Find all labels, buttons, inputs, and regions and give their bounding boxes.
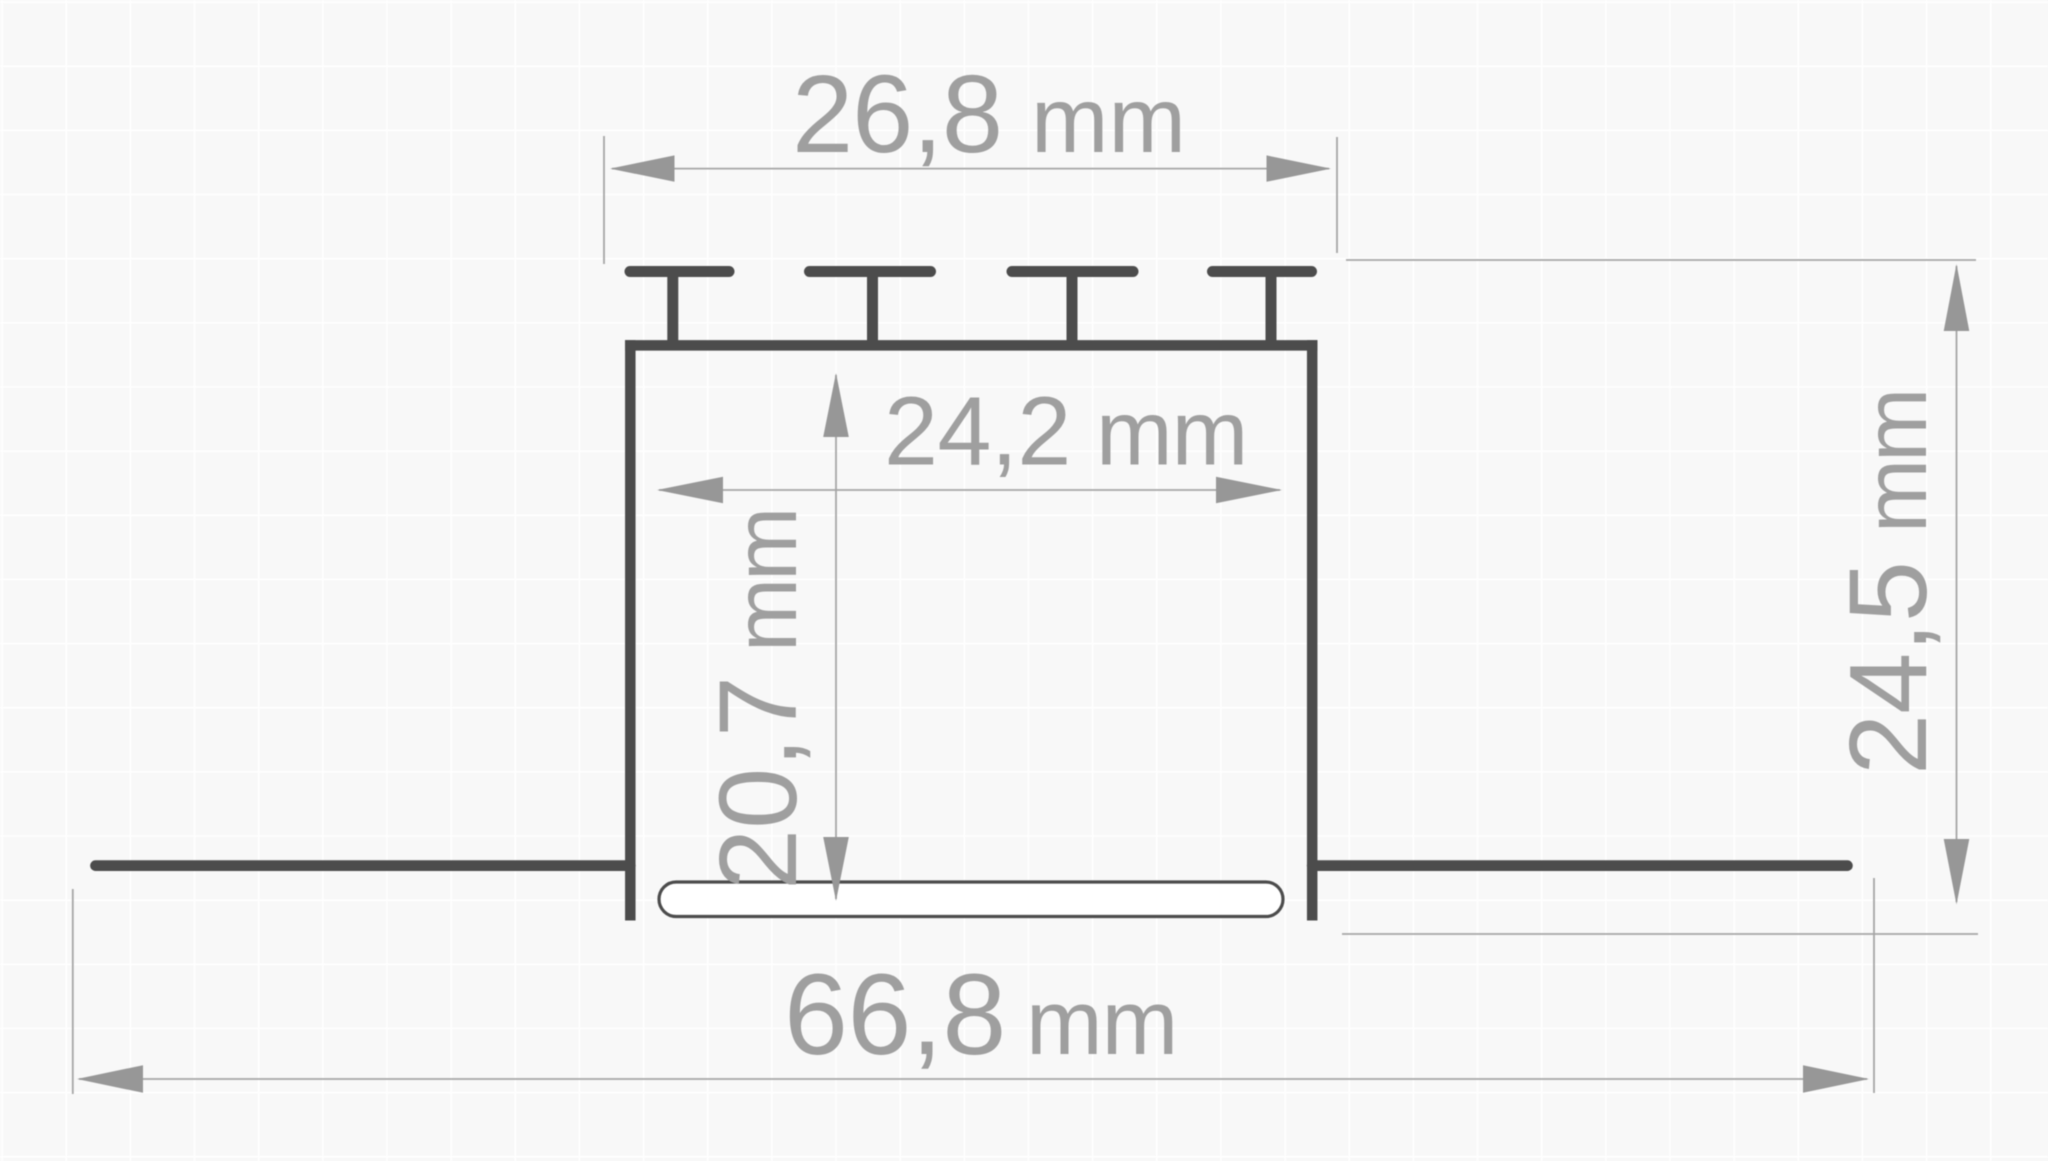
svg-text:26,8: 26,8	[792, 53, 1002, 176]
svg-text:mm: mm	[1031, 68, 1186, 172]
svg-text:66,8: 66,8	[784, 951, 1006, 1079]
svg-text:20,7: 20,7	[697, 676, 820, 890]
svg-text:mm: mm	[1026, 972, 1177, 1074]
svg-text:mm: mm	[1096, 383, 1247, 485]
svg-text:mm: mm	[1845, 391, 1945, 533]
svg-text:mm: mm	[715, 510, 815, 652]
svg-text:24,2: 24,2	[884, 377, 1071, 486]
svg-text:24,5: 24,5	[1827, 561, 1950, 775]
